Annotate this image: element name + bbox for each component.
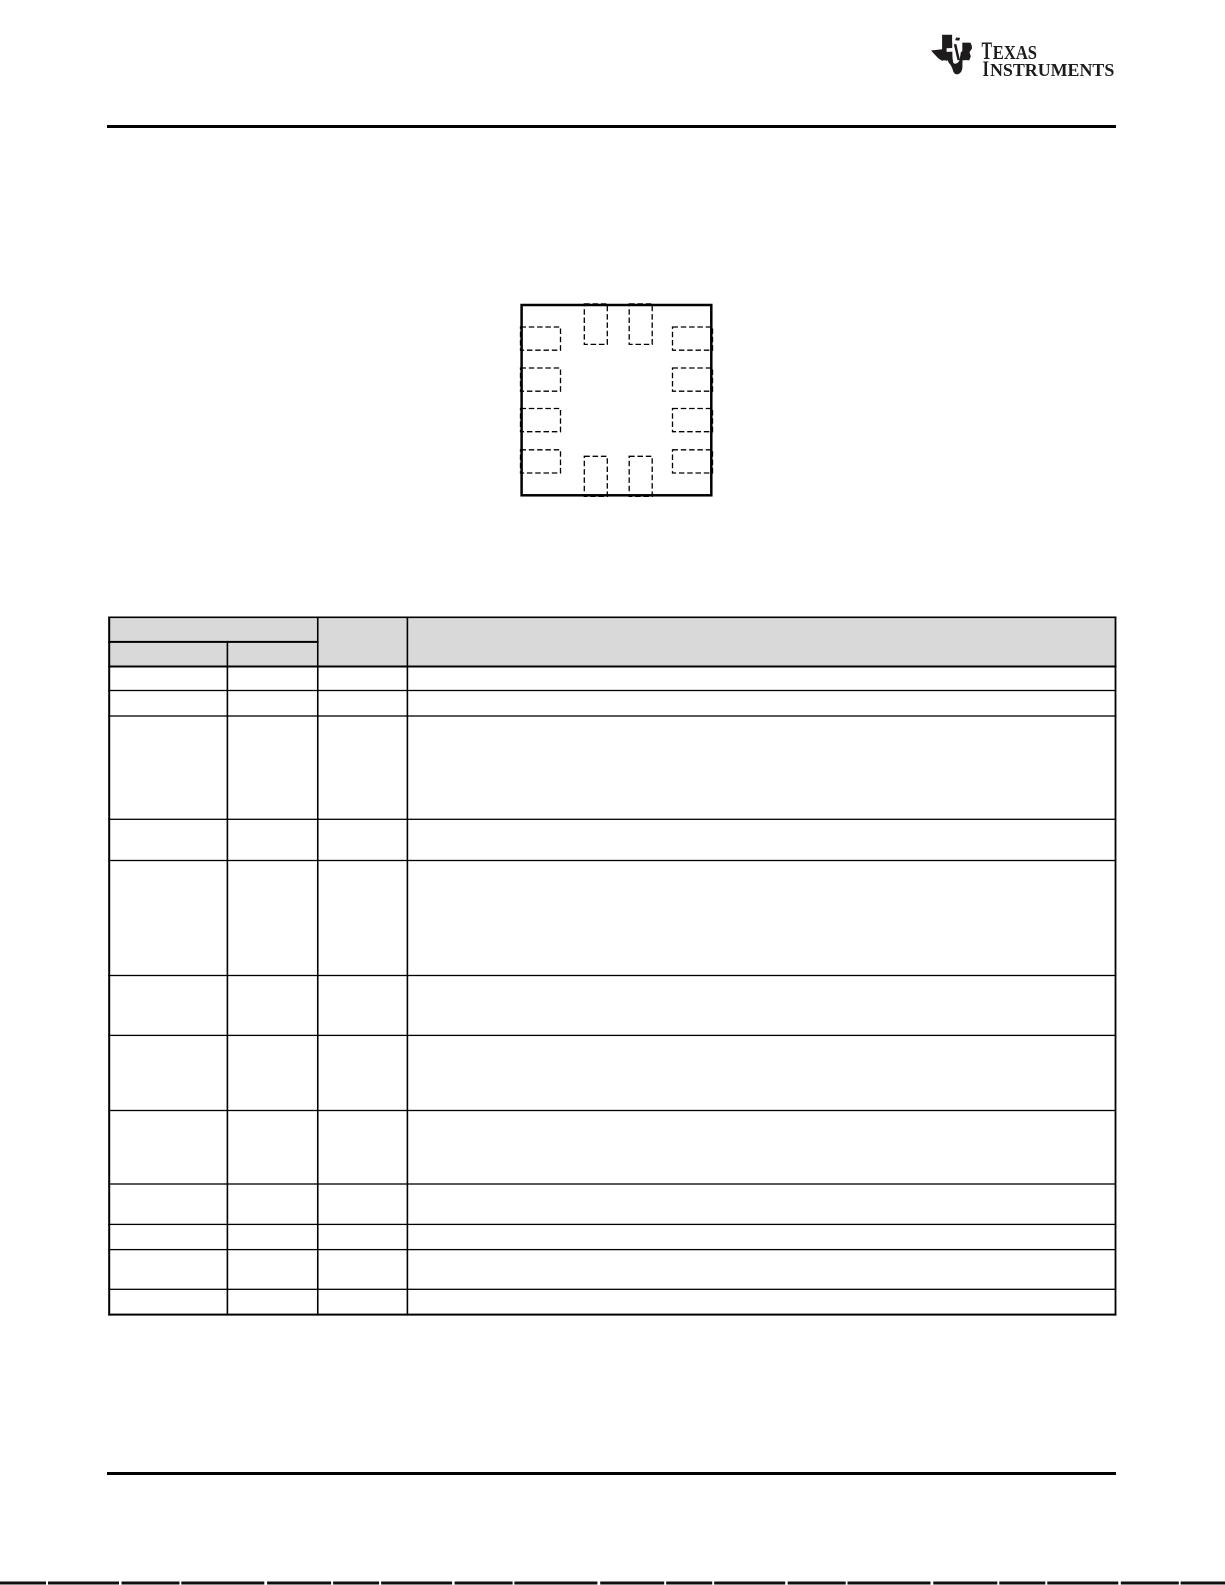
svg-text:NSTRUMENTS: NSTRUMENTS	[990, 60, 1114, 80]
svg-text:I: I	[983, 56, 989, 81]
